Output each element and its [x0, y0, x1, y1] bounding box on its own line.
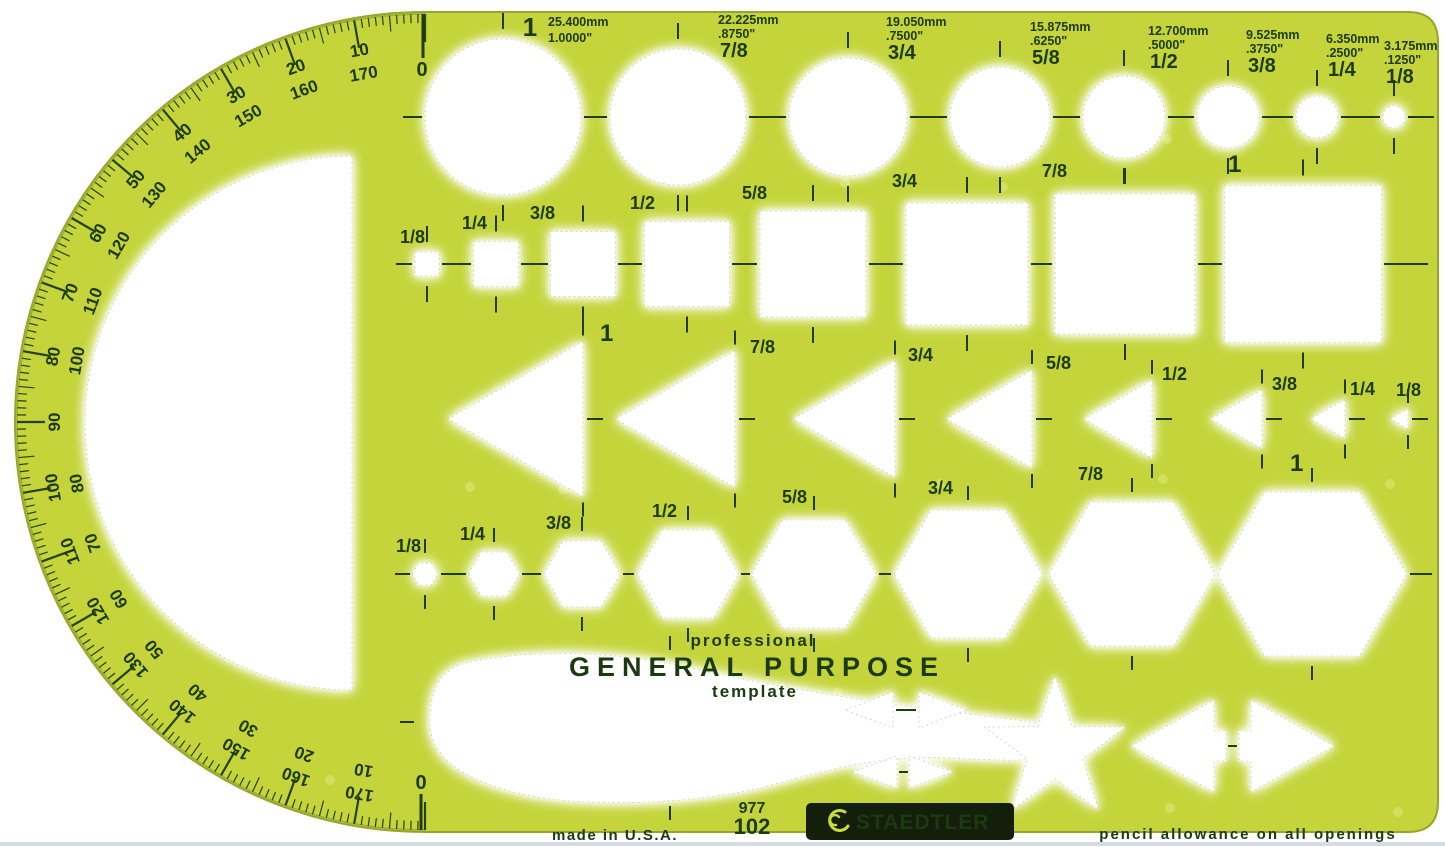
- triangle-size-label: 3/8: [1272, 374, 1297, 394]
- hexagon-size-label: 3/4: [928, 478, 953, 498]
- made-in-usa-text: made in U.S.A.: [552, 827, 678, 844]
- circle-size-fraction: 1/8: [1386, 66, 1414, 88]
- general-purpose-text: GENERAL PURPOSE: [569, 652, 945, 682]
- circle-cutout: [1383, 106, 1405, 128]
- circle-size-mm: 6.350mm: [1326, 32, 1380, 46]
- molding-dot: [1385, 479, 1395, 489]
- molding-dot: [1158, 474, 1168, 484]
- hexagon-size-label: 1: [1290, 450, 1303, 477]
- protractor-degree-outer: 80: [42, 345, 64, 367]
- circle-size-inch: .5000": [1148, 38, 1185, 52]
- protractor-tick: [18, 394, 27, 395]
- square-size-label: 3/4: [892, 171, 917, 191]
- square-cutout: [1055, 194, 1195, 334]
- molding-dot: [465, 482, 475, 492]
- square-cutout: [906, 203, 1028, 325]
- circle-size-inch: 1.0000": [548, 31, 592, 45]
- template-svg: 0010170201603015040140501306012070110801…: [0, 0, 1445, 847]
- square-size-label: 1/8: [400, 227, 425, 247]
- protractor-zero-top-label: 0: [416, 59, 427, 81]
- professional-text: professional: [690, 631, 815, 650]
- protractor-degree-outer: 10: [348, 39, 370, 61]
- circle-cutout: [1296, 96, 1338, 138]
- molding-dot: [1162, 134, 1172, 144]
- circle-size-inch: .7500": [886, 29, 923, 43]
- protractor-degree-inner: 80: [66, 472, 88, 494]
- circle-size-mm: 3.175mm: [1384, 39, 1438, 53]
- protractor-zero-bottom-label: 0: [415, 772, 426, 794]
- triangle-size-label: 1: [600, 320, 613, 347]
- circle-size-fraction: 1: [523, 12, 537, 42]
- square-cutout: [415, 252, 439, 276]
- hexagon-size-label: 1/8: [396, 536, 421, 556]
- molding-dot: [325, 775, 335, 785]
- circle-size-fraction: 3/4: [888, 42, 917, 64]
- triangle-size-label: 5/8: [1046, 353, 1071, 373]
- square-size-label: 3/8: [530, 203, 555, 223]
- circle-size-fraction: 5/8: [1032, 47, 1060, 69]
- circle-size-mm: 12.700mm: [1148, 24, 1208, 38]
- circle-size-fraction: 1/4: [1328, 59, 1357, 81]
- circle-size-inch: .3750": [1246, 42, 1283, 56]
- circle-cutout: [1197, 86, 1259, 148]
- protractor-degree-inner: 10: [353, 759, 375, 781]
- template-text: template: [712, 682, 798, 701]
- circle-cutout: [425, 39, 581, 195]
- square-cutout: [645, 222, 730, 307]
- protractor-tick: [18, 450, 27, 451]
- square-size-label: 5/8: [742, 183, 767, 203]
- circle-size-fraction: 3/8: [1248, 55, 1276, 77]
- circle-size-mm: 22.225mm: [718, 13, 778, 27]
- circle-size-mm: 25.400mm: [548, 15, 608, 29]
- circle-size-fraction: 7/8: [720, 40, 748, 62]
- circle-size-mm: 9.525mm: [1246, 28, 1300, 42]
- hexagon-size-label: 1/4: [460, 524, 485, 544]
- triangle-size-label: 1/4: [1350, 379, 1375, 399]
- protractor-tick: [397, 15, 398, 24]
- triangle-size-label: 1/8: [1396, 380, 1421, 400]
- circle-cutout: [1083, 76, 1165, 158]
- circle-size-mm: 15.875mm: [1030, 20, 1090, 34]
- triangle-size-label: 7/8: [750, 337, 775, 357]
- square-size-label: 1/2: [630, 193, 655, 213]
- triangle-size-label: 3/4: [908, 345, 933, 365]
- square-cutout: [1225, 186, 1382, 343]
- model-number-bottom: 102: [734, 814, 771, 839]
- circle-size-mm: 19.050mm: [886, 15, 946, 29]
- hexagon-size-label: 3/8: [546, 513, 571, 533]
- square-size-label: 1/4: [462, 213, 487, 233]
- scan-edge-line: [0, 842, 1445, 846]
- square-cutout: [474, 242, 519, 287]
- triangle-size-label: 1/2: [1162, 364, 1187, 384]
- protractor-degree-outer: 90: [45, 413, 64, 432]
- circle-size-fraction: 1/2: [1150, 51, 1178, 73]
- circle-size-inch: .2500": [1326, 46, 1363, 60]
- square-cutout: [760, 211, 866, 317]
- protractor-tick: [397, 820, 398, 829]
- square-cutout: [551, 232, 616, 297]
- square-size-label: 7/8: [1042, 161, 1067, 181]
- molding-dot: [1165, 803, 1175, 813]
- circle-size-inch: .6250": [1030, 34, 1067, 48]
- circle-cutout: [789, 58, 907, 176]
- photo-of-drafting-template: 0010170201603015040140501306012070110801…: [0, 0, 1445, 847]
- circle-cutout: [950, 67, 1050, 167]
- staedtler-wordmark: STAEDTLER: [856, 811, 989, 834]
- molding-dot: [1393, 807, 1403, 817]
- hexagon-size-label: 7/8: [1078, 464, 1103, 484]
- circle-size-inch: .1250": [1384, 53, 1421, 67]
- pencil-allowance-note: pencil allowance on all openings: [1099, 826, 1396, 843]
- hexagon-size-label: 1/2: [652, 501, 677, 521]
- circle-size-inch: .8750": [718, 27, 755, 41]
- square-size-label: 1: [1228, 151, 1241, 178]
- circle-cutout: [610, 49, 746, 185]
- hexagon-size-label: 5/8: [782, 487, 807, 507]
